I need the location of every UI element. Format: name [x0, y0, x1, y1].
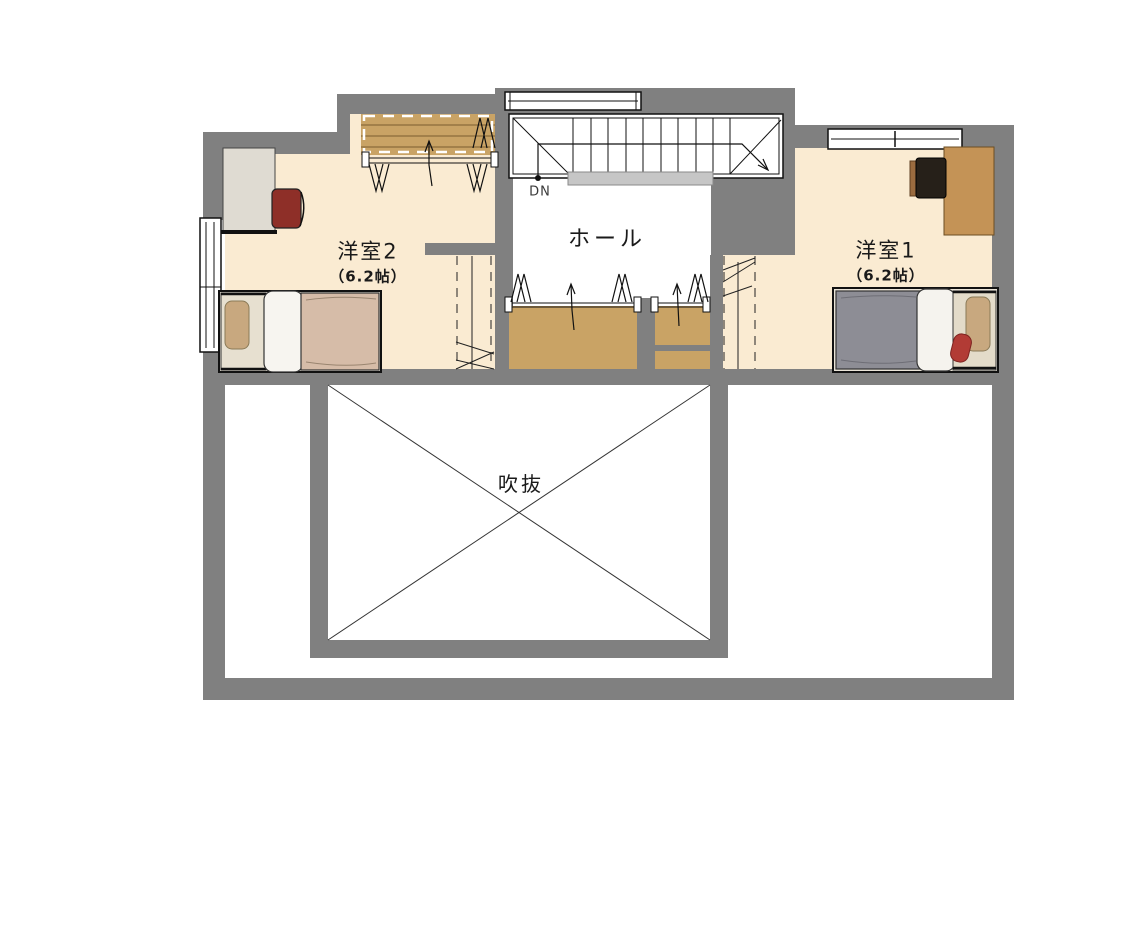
bed-room1: [833, 288, 998, 372]
floor-plan: 洋室2 （6.2帖） 洋室1 （6.2帖） ホール 吹抜 DN: [0, 0, 1146, 931]
pillow-white: [264, 291, 303, 372]
blanket-gray: [836, 291, 921, 369]
wall-closet-strip-divider: [648, 345, 710, 351]
chair-room1: [910, 158, 946, 198]
void-wall-bottom: [310, 640, 728, 658]
desk-room1: [944, 147, 994, 235]
outer-wall-left-lower: [203, 350, 225, 700]
wall-hall-room1: [710, 255, 723, 369]
room2-name-label: 洋室2: [337, 242, 398, 263]
closet-room2-shelf: [361, 114, 495, 155]
bed-room2: [219, 291, 381, 372]
outer-wall-bottom: [203, 678, 1014, 700]
stairs-dn-label: DN: [529, 186, 551, 199]
void-x-icon: [328, 385, 710, 640]
window-room1-icon: [828, 129, 962, 149]
pillow-white: [917, 289, 955, 371]
pillow-tan: [225, 301, 249, 349]
window-stairs-icon: [505, 92, 641, 110]
room1-floor-entry: [723, 255, 795, 370]
hall-name-label: ホール: [568, 229, 646, 251]
closet-hall-right: [651, 274, 710, 369]
closet-hall-right-lower-fill: [655, 351, 710, 369]
void-wall-right: [710, 385, 728, 658]
window-left-icon: [200, 218, 221, 352]
stair-outer-frame: [509, 114, 783, 178]
closet-hall-left: [505, 274, 641, 369]
wall-stub-room2: [425, 243, 497, 255]
room2-size-label: （6.2帖）: [329, 270, 407, 285]
outer-wall-right: [992, 125, 1014, 700]
hanger-icon: [511, 274, 531, 302]
wall-block-stairs-room1: [711, 178, 795, 255]
blanket-beige: [301, 293, 379, 370]
room1-size-label: （6.2帖）: [847, 269, 925, 284]
outer-wall-top-closet2: [337, 94, 505, 114]
closet-hall-right-fill: [655, 306, 710, 345]
stair-handrail: [568, 172, 713, 185]
chair-room2: [272, 189, 304, 228]
wall-stairs-right: [783, 88, 795, 178]
floor-plan-drawing: [0, 0, 1146, 931]
room1-name-label: 洋室1: [855, 241, 916, 262]
void-wall-left: [310, 385, 328, 658]
void-name-label: 吹抜: [498, 474, 544, 494]
staircase: [509, 114, 783, 185]
hanger-icon: [612, 274, 632, 302]
desk-room2: [221, 148, 277, 234]
